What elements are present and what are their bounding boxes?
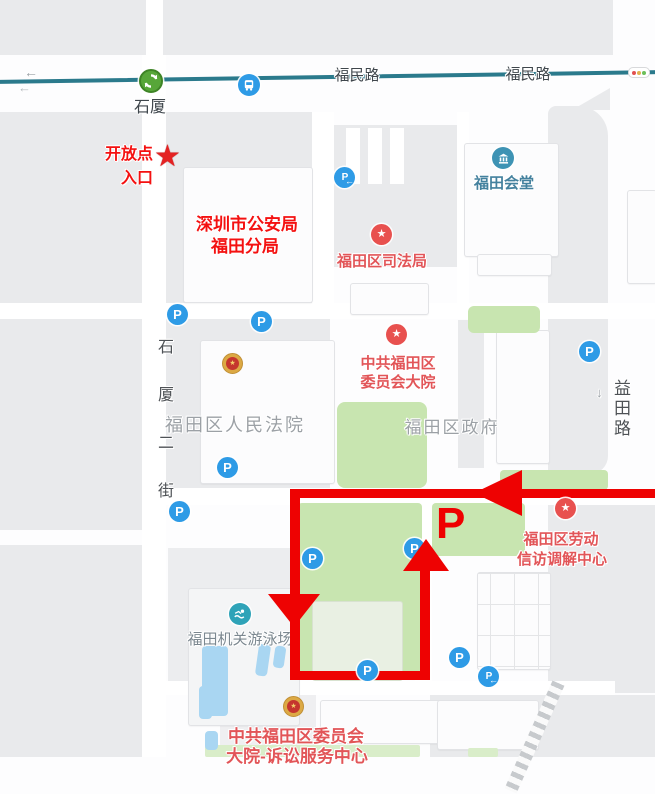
building bbox=[627, 190, 655, 284]
metro-station-icon[interactable] bbox=[139, 69, 163, 93]
left-arrow-glyph: ← bbox=[345, 177, 354, 186]
map-canvas[interactable]: { "map": { "transit_line": { "name_label… bbox=[0, 0, 655, 757]
star-glyph: ★ bbox=[290, 703, 296, 710]
route-arrowhead-left bbox=[474, 470, 522, 516]
road-arrow-left-icon: ← bbox=[18, 80, 31, 95]
national-emblem-icon[interactable]: ★ bbox=[222, 353, 243, 374]
route-segment-right bbox=[420, 565, 430, 680]
parking-area-letter: P bbox=[436, 502, 465, 546]
lawn bbox=[468, 306, 540, 333]
parking-letter: P bbox=[308, 552, 317, 565]
star-glyph: ★ bbox=[392, 329, 402, 340]
parking-icon[interactable]: P bbox=[217, 457, 238, 478]
road bbox=[312, 112, 334, 306]
road-arrow-down-icon: ↓ bbox=[596, 385, 603, 400]
swimmer-glyph bbox=[233, 607, 247, 621]
road bbox=[146, 0, 163, 55]
parking-letter: P bbox=[363, 664, 372, 677]
street-label-yitian: 益田路 bbox=[608, 379, 633, 439]
road bbox=[368, 128, 382, 184]
parking-icon[interactable]: P bbox=[302, 548, 323, 569]
police-bureau-label-line2: 福田分局 bbox=[211, 232, 279, 257]
parking-letter: P bbox=[223, 461, 232, 474]
metro-station-label[interactable]: 石厦 bbox=[134, 93, 166, 117]
road bbox=[0, 303, 655, 319]
metro-logo-glyph bbox=[143, 73, 159, 89]
labor-center-poi-icon[interactable]: ★ bbox=[555, 498, 576, 519]
justice-bureau-label[interactable]: 福田区司法局 bbox=[337, 250, 427, 271]
committee-compound-label-line2[interactable]: 委员会大院 bbox=[360, 371, 435, 392]
building-district-government bbox=[496, 330, 550, 464]
entrance-label-line2: 入口 bbox=[95, 164, 153, 188]
parking-letter: P bbox=[257, 315, 266, 328]
people-court-label[interactable]: 福田区人民法院 bbox=[165, 411, 305, 437]
futian-hall-label[interactable]: 福田会堂 bbox=[474, 172, 534, 193]
lawn bbox=[468, 748, 498, 757]
hall-poi-icon[interactable] bbox=[492, 147, 514, 169]
building bbox=[477, 572, 551, 670]
star-glyph: ★ bbox=[561, 503, 571, 514]
city-block bbox=[0, 318, 142, 530]
parking-letter: P bbox=[455, 651, 464, 664]
star-glyph: ★ bbox=[377, 229, 387, 240]
parking-letter: P bbox=[173, 308, 182, 321]
justice-bureau-poi-icon[interactable]: ★ bbox=[371, 224, 392, 245]
litigation-center-label-line2[interactable]: 大院-诉讼服务中心 bbox=[226, 742, 368, 767]
building bbox=[350, 283, 429, 315]
bus-stop-icon[interactable] bbox=[238, 74, 260, 96]
city-block bbox=[0, 545, 152, 757]
entrance-label-line1: 开放点 bbox=[95, 140, 153, 164]
parking-icon[interactable]: P bbox=[251, 311, 272, 332]
entrance-star-icon: ★ bbox=[154, 142, 181, 172]
street-label-shixia-2nd: 石厦二街 bbox=[151, 338, 175, 530]
city-block bbox=[458, 320, 484, 468]
parking-entrance-icon[interactable]: P← bbox=[478, 666, 499, 687]
committee-compound-poi-icon[interactable]: ★ bbox=[386, 324, 407, 345]
city-block bbox=[572, 88, 610, 110]
entrance-annotation: 开放点 入口 bbox=[95, 140, 153, 188]
parking-icon[interactable]: P bbox=[579, 341, 600, 362]
bus-glyph bbox=[242, 78, 256, 92]
pool-water bbox=[199, 686, 212, 719]
pool-water bbox=[205, 731, 218, 750]
parking-icon[interactable]: P bbox=[169, 501, 190, 522]
city-block bbox=[438, 140, 456, 242]
route-arrowhead-down bbox=[268, 594, 320, 627]
city-block bbox=[0, 0, 146, 55]
parking-letter: P bbox=[175, 505, 184, 518]
swimming-pool-label[interactable]: 福田机关游泳场 bbox=[187, 628, 292, 649]
building bbox=[477, 254, 552, 276]
district-government-label[interactable]: 福田区政府 bbox=[405, 413, 500, 438]
hall-building-glyph bbox=[497, 152, 510, 165]
left-arrow-glyph: ← bbox=[489, 676, 498, 685]
city-block bbox=[163, 0, 613, 55]
labor-center-label-line2[interactable]: 信访调解中心 bbox=[517, 548, 607, 569]
parking-icon[interactable]: P bbox=[167, 304, 188, 325]
parking-icon[interactable]: P bbox=[449, 647, 470, 668]
road-label-fumin: 福民路 bbox=[505, 63, 550, 84]
road-arrow-left-icon: ← bbox=[24, 64, 38, 80]
national-emblem-icon[interactable]: ★ bbox=[283, 696, 304, 717]
swimming-poi-icon[interactable] bbox=[229, 603, 251, 625]
star-glyph: ★ bbox=[229, 360, 235, 367]
parking-letter: P bbox=[585, 345, 594, 358]
labor-center-label-line1[interactable]: 福田区劳动 bbox=[523, 528, 598, 549]
parking-entrance-icon[interactable]: P← bbox=[334, 167, 355, 188]
traffic-light-icon bbox=[628, 67, 650, 78]
route-segment-left bbox=[290, 489, 300, 675]
committee-compound-label-line1[interactable]: 中共福田区 bbox=[360, 352, 435, 373]
metro-line bbox=[0, 70, 655, 84]
parking-icon[interactable]: P bbox=[357, 660, 378, 681]
road-label-fumin: 福民路 bbox=[334, 64, 379, 85]
road bbox=[390, 128, 404, 184]
